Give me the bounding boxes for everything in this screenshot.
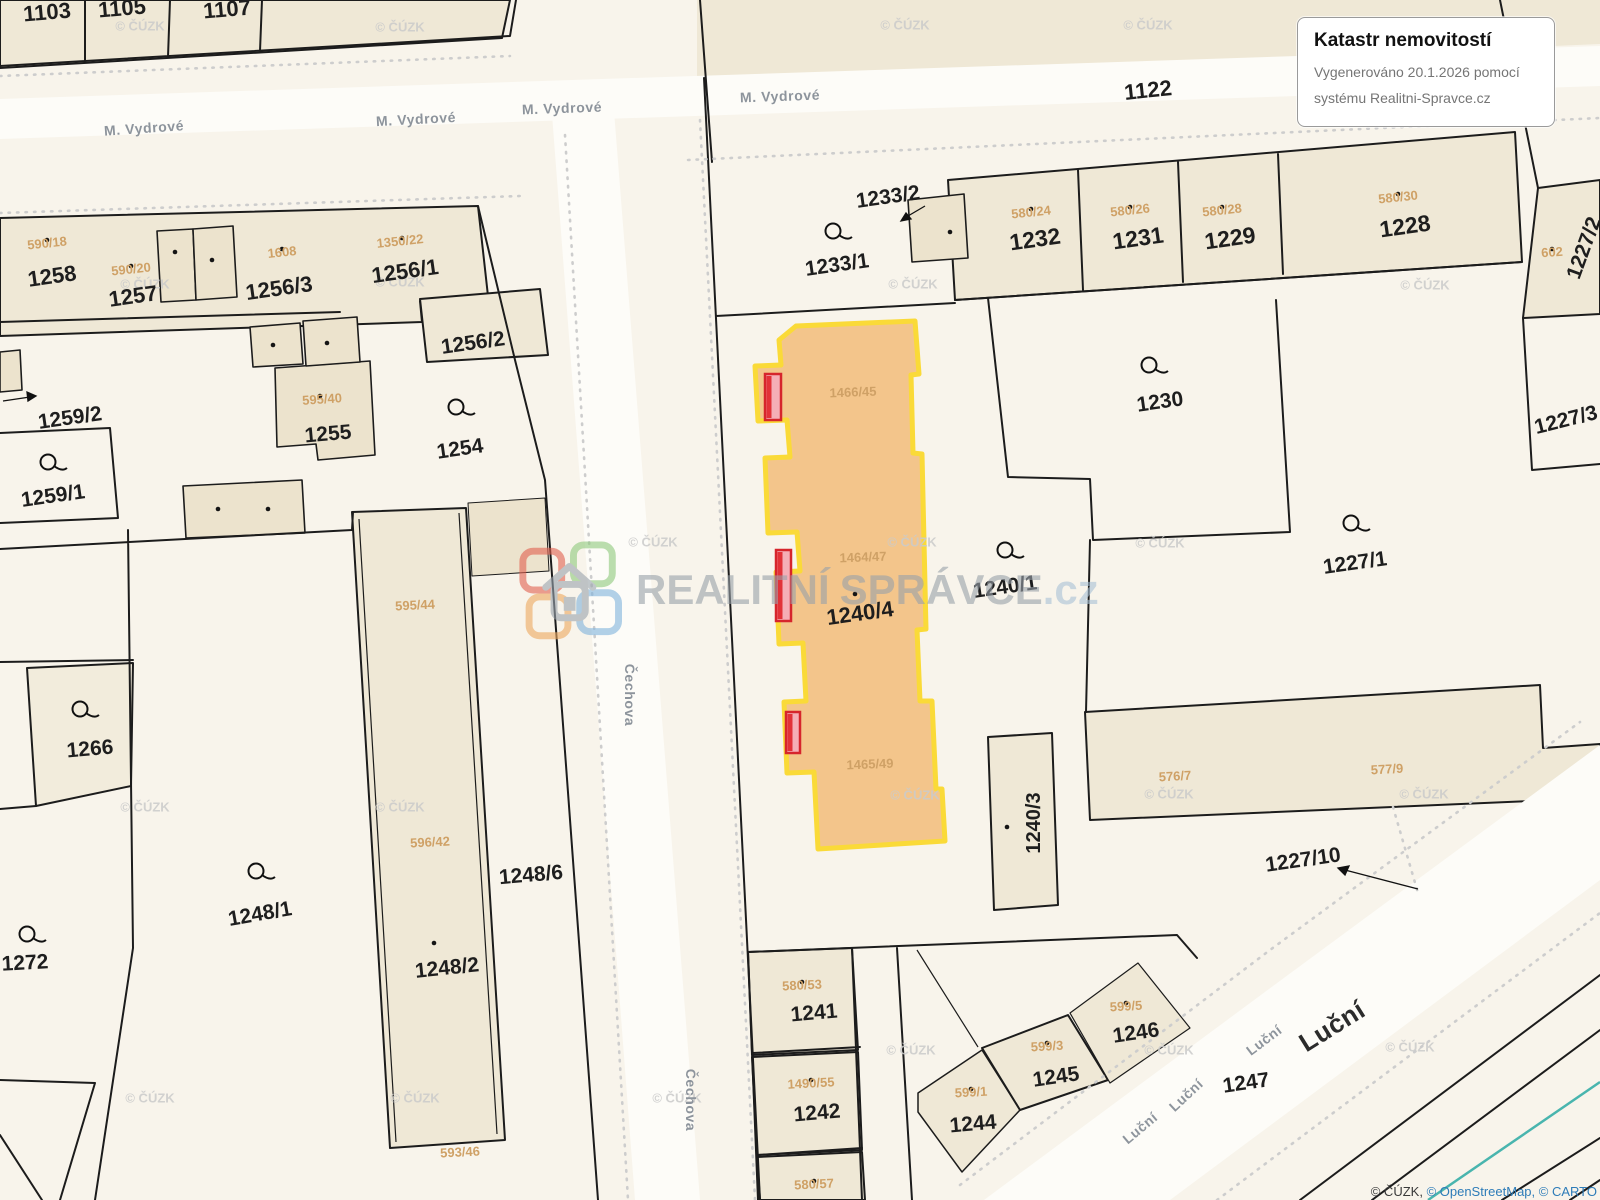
cuzk-watermark: © ČÚZK xyxy=(887,535,937,550)
attribution-osm-link[interactable]: © OpenStreetMap, xyxy=(1427,1184,1536,1199)
parcel-label-1107: 1107 xyxy=(202,0,252,24)
building-number-602: 602 xyxy=(1541,244,1564,260)
cuzk-watermark: © ČÚZK xyxy=(375,20,425,35)
building-number-1465/49: 1465/49 xyxy=(846,756,893,773)
building-number-1490/55: 1490/55 xyxy=(787,1074,835,1091)
building-number-595/44: 595/44 xyxy=(395,596,436,613)
building-number-599/5: 599/5 xyxy=(1109,998,1142,1015)
parcel-label-1255: 1255 xyxy=(304,420,353,447)
attribution-cuzk: © ČÚZK, xyxy=(1371,1184,1423,1199)
cuzk-watermark: © ČÚZK xyxy=(1385,1040,1435,1055)
map-canvas[interactable]: © ČÚZK© ČÚZK© ČÚZK© ČÚZK© ČÚZK© ČÚZK© ČÚ… xyxy=(0,0,1600,1200)
parcel-label-1240/3: 1240/3 xyxy=(1023,792,1045,853)
parcel-label-1122: 1122 xyxy=(1123,75,1173,105)
building-small-a[interactable] xyxy=(250,323,303,367)
building-small-d[interactable] xyxy=(193,226,237,300)
building-number-577/9: 577/9 xyxy=(1370,761,1403,778)
cuzk-watermark: © ČÚZK xyxy=(1123,18,1173,33)
parcel-1266[interactable] xyxy=(27,663,133,806)
building-dot xyxy=(432,941,437,946)
building-small-e[interactable] xyxy=(183,480,305,538)
cadastral-map-view: © ČÚZK© ČÚZK© ČÚZK© ČÚZK© ČÚZK© ČÚZK© ČÚ… xyxy=(0,0,1600,1200)
parcel-label-1103: 1103 xyxy=(22,0,72,27)
street-label: M. Vydrové xyxy=(522,99,603,118)
building-number-599/3: 599/3 xyxy=(1030,1038,1063,1055)
building-dot xyxy=(1005,825,1010,830)
building-number-1608: 1608 xyxy=(267,243,297,261)
map-attribution: © ČÚZK, © OpenStreetMap, © CARTO xyxy=(1371,1184,1597,1199)
cuzk-watermark: © ČÚZK xyxy=(1144,787,1194,802)
info-box: Katastr nemovitostí Vygenerováno 20.1.20… xyxy=(1297,17,1555,127)
red-marker-1-bar xyxy=(767,376,772,418)
building-dot xyxy=(271,343,276,348)
building-number-576/7: 576/7 xyxy=(1158,768,1191,785)
info-box-title: Katastr nemovitostí xyxy=(1314,30,1538,52)
building-number-595/40: 595/40 xyxy=(302,390,343,408)
street-label: Čechova xyxy=(683,1069,700,1132)
attribution-carto-link[interactable]: © CARTO xyxy=(1539,1184,1597,1199)
building-small-g[interactable] xyxy=(0,350,22,392)
building-dot xyxy=(216,507,221,512)
parcel-label-1272: 1272 xyxy=(1,950,49,975)
parcel-label-1244: 1244 xyxy=(949,1110,998,1137)
street-label: M. Vydrové xyxy=(740,87,821,106)
building-number-596/42: 596/42 xyxy=(410,833,450,850)
parcel-label-1242: 1242 xyxy=(793,1100,842,1127)
building-dot xyxy=(266,507,271,512)
building-dot xyxy=(210,258,215,263)
building-number-580/53: 580/53 xyxy=(782,976,822,993)
building-number-580/57: 580/57 xyxy=(794,1175,834,1192)
cuzk-watermark: © ČÚZK xyxy=(886,1043,936,1058)
cuzk-watermark: © ČÚZK xyxy=(890,788,940,803)
building-small-b[interactable] xyxy=(303,317,360,366)
red-marker-2-bar xyxy=(778,552,783,619)
building-dot xyxy=(853,592,858,597)
cuzk-watermark: © ČÚZK xyxy=(1135,536,1185,551)
cuzk-watermark: © ČÚZK xyxy=(1399,787,1449,802)
info-box-line1: Vygenerováno 20.1.2026 pomocí xyxy=(1314,60,1538,86)
building-number-1464/47: 1464/47 xyxy=(839,549,886,566)
building-number-1466/45: 1466/45 xyxy=(829,384,876,401)
building-small-f[interactable] xyxy=(468,498,549,576)
building-number-599/1: 599/1 xyxy=(954,1084,987,1101)
street-label: Čechova xyxy=(622,664,639,727)
cuzk-watermark: © ČÚZK xyxy=(628,535,678,550)
info-box-line2: systému Realitni-Spravce.cz xyxy=(1314,86,1538,112)
building-number-593/46: 593/46 xyxy=(440,1143,480,1160)
cuzk-watermark: © ČÚZK xyxy=(120,800,170,815)
building-dot xyxy=(325,341,330,346)
cuzk-watermark: © ČÚZK xyxy=(125,1091,175,1106)
cuzk-watermark: © ČÚZK xyxy=(1400,278,1450,293)
cuzk-watermark: © ČÚZK xyxy=(888,277,938,292)
cuzk-watermark: © ČÚZK xyxy=(115,19,165,34)
parcel-label-1241: 1241 xyxy=(790,999,839,1026)
cuzk-watermark: © ČÚZK xyxy=(880,18,930,33)
red-marker-3-bar xyxy=(788,714,793,751)
cuzk-watermark: © ČÚZK xyxy=(390,1091,440,1106)
cuzk-watermark: © ČÚZK xyxy=(1144,1043,1194,1058)
building-dot xyxy=(173,250,178,255)
parcel-label-1266: 1266 xyxy=(66,736,115,763)
cuzk-watermark: © ČÚZK xyxy=(375,800,425,815)
building-dot xyxy=(948,230,953,235)
